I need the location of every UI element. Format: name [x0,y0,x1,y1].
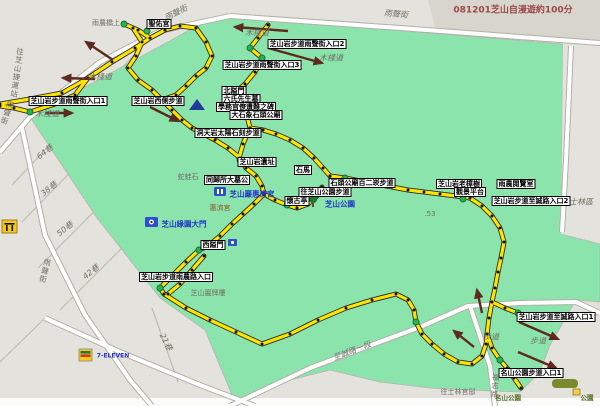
route-dot [163,293,166,296]
route-dot [491,301,494,304]
route-dot [249,127,252,130]
route-dot [488,317,491,320]
route-dot [503,241,506,244]
route-dot [171,109,174,112]
route-dot [134,47,137,50]
map-canvas [0,0,600,406]
route-dot [241,103,244,106]
route-dot [29,98,32,101]
route-dot [54,103,57,106]
route-dot [486,333,489,336]
route-dot [494,287,497,290]
route-dot [242,213,245,216]
route-dot [209,319,212,322]
route-dot [235,91,238,94]
route-dot [242,143,245,146]
seven-eleven-icon [79,349,92,361]
route-dot [151,89,154,92]
trail-marker [515,310,521,316]
route-dot [497,271,500,274]
route-dot [439,193,442,196]
route-dot [313,157,316,160]
trail-marker [413,319,419,325]
route-dot [253,203,256,206]
route-dot [235,331,238,334]
trail-marker [237,157,243,163]
route-dot [421,333,424,336]
route-dot [481,355,484,358]
route-dot [207,245,210,248]
route-dot [211,55,214,58]
route-dot [275,133,278,136]
route-dot [407,299,410,302]
route-dot [329,175,332,178]
route-dot [455,195,458,198]
route-dot [137,79,140,82]
route-dot [254,71,257,74]
route-dot [175,94,178,97]
route-dot [149,37,152,40]
route-dot [171,275,174,278]
bottom-white-strip [0,398,600,406]
route-dot [413,309,416,312]
trail-marker [284,202,290,208]
trail-marker [244,113,250,119]
route-dot [132,27,135,30]
route-dot [375,183,378,186]
trail-marker [196,247,202,253]
route-dot [203,255,206,258]
route-dot [504,307,507,310]
route-dot [322,167,325,170]
route-dot [423,191,426,194]
route-dot [161,99,164,102]
route-dot [391,186,394,189]
route-dot [137,29,140,32]
zhishan-trail-map: 081201芝山自漫遊約100分雨聲街雨聲街往芝山捷運站雨聲街雨聲街64巷38巷… [0,0,600,406]
route-dot [179,25,182,28]
route-dot [214,139,217,142]
route-dot [135,55,138,58]
trail-marker [259,55,265,61]
route-dot [457,361,460,364]
trail-marker [121,21,127,27]
direction-arrow [63,78,95,79]
route-dot [185,307,188,310]
route-dot [520,387,523,390]
route-dot [267,24,270,27]
trail-marker [497,357,503,363]
route-dot [359,180,362,183]
route-dot [185,85,188,88]
route-dot [191,127,194,130]
route-dot [302,147,305,150]
route-dot [205,67,208,70]
route-dot [274,199,277,202]
route-dot [499,227,502,230]
route-dot [481,205,484,208]
route-dot [127,67,130,70]
route-dot [195,75,198,78]
route-dot [261,185,264,188]
route-dot [262,129,265,132]
route-dot [61,92,64,95]
route-dot [443,353,446,356]
route-dot [219,235,222,238]
route-dot [141,41,144,44]
route-dot [491,347,494,350]
route-dot [371,299,374,302]
route-dot [195,27,198,30]
route-dot [244,83,247,86]
route-dot [261,343,264,346]
route-dot [289,333,292,336]
route-dot [296,207,299,210]
route-dot [471,363,474,366]
camera-icon [145,217,158,227]
trail-marker [342,175,348,181]
route-dot [513,377,516,380]
route-dot [289,139,292,142]
paifang-gate-icon [2,220,17,233]
trail-marker [157,285,163,291]
route-dot [13,107,16,110]
route-dot [469,197,472,200]
route-dot [506,367,509,370]
route-dot [257,37,260,40]
route-dot [255,175,258,178]
route-dot [191,269,194,272]
route-dot [317,319,320,322]
route-dot [407,189,410,192]
route-dot [227,147,230,150]
route-dot [345,307,348,310]
temple-icon [214,187,226,196]
route-dot [167,293,170,296]
trail-marker [460,196,466,202]
route-dot [231,223,234,226]
trail-marker [247,45,253,51]
route-dot [491,215,494,218]
route-dot [179,283,182,286]
heritage-tag-icon [228,239,237,246]
trail-marker [144,28,150,34]
route-dot [395,293,398,296]
route-dot [181,119,184,122]
route-dot [500,257,503,260]
route-dot [321,186,324,189]
route-dot [185,261,188,264]
route-dot [74,94,77,97]
route-dot [431,343,434,346]
route-dot [111,61,114,64]
route-dot [485,343,488,346]
route-dot [263,193,266,196]
route-dot [307,203,310,206]
route-dot [205,41,208,44]
route-dot [199,131,202,134]
trail-marker [27,109,33,115]
route-dot [164,29,167,32]
route-dot [245,167,248,170]
route-dot [157,21,160,24]
